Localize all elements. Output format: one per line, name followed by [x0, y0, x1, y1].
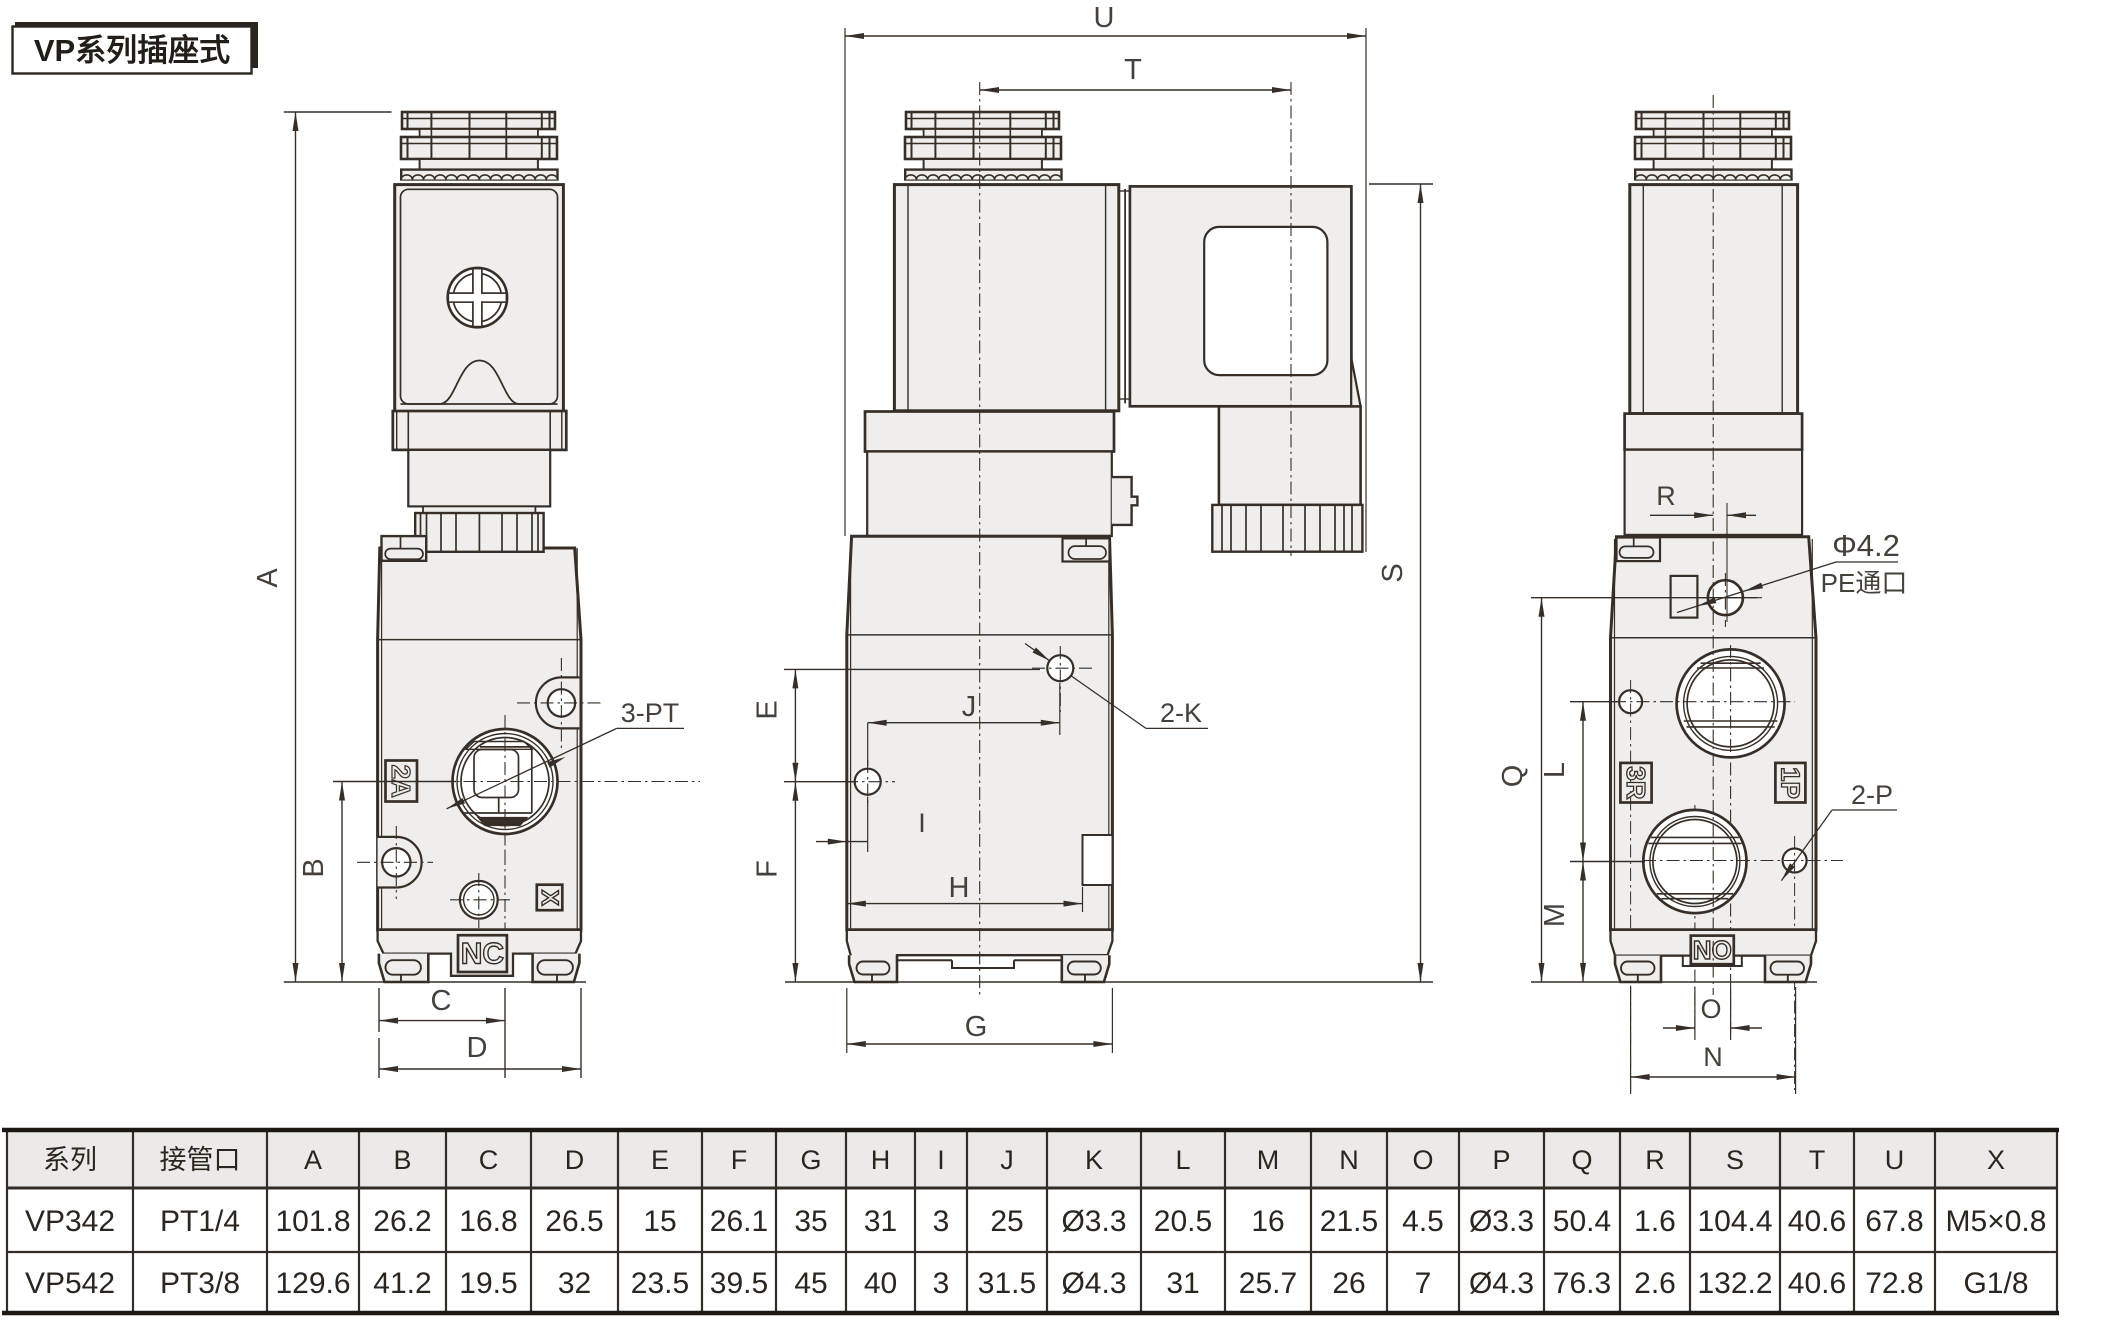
svg-text:U: U	[1885, 1145, 1905, 1175]
svg-text:R: R	[1645, 1145, 1665, 1175]
svg-text:15: 15	[643, 1205, 676, 1238]
svg-text:S: S	[1377, 563, 1409, 582]
svg-text:50.4: 50.4	[1553, 1205, 1611, 1238]
svg-text:B: B	[393, 1145, 411, 1175]
svg-text:67.8: 67.8	[1865, 1205, 1923, 1238]
svg-text:1.6: 1.6	[1634, 1205, 1676, 1238]
svg-text:J: J	[1000, 1145, 1014, 1175]
svg-text:D: D	[467, 1032, 488, 1064]
svg-text:D: D	[565, 1145, 585, 1175]
svg-text:19.5: 19.5	[459, 1267, 517, 1300]
svg-text:Ø3.3: Ø3.3	[1061, 1205, 1126, 1238]
svg-text:21.5: 21.5	[1320, 1205, 1378, 1238]
svg-text:39.5: 39.5	[710, 1267, 768, 1300]
svg-text:Q: Q	[1571, 1145, 1592, 1175]
svg-text:45: 45	[794, 1267, 827, 1300]
svg-text:U: U	[1094, 2, 1115, 34]
svg-text:40.6: 40.6	[1788, 1205, 1846, 1238]
svg-text:3: 3	[933, 1205, 950, 1238]
svg-text:PE通口: PE通口	[1821, 568, 1908, 598]
svg-text:26.5: 26.5	[545, 1205, 603, 1238]
svg-text:J: J	[962, 691, 977, 723]
svg-text:T: T	[1124, 54, 1142, 86]
svg-text:129.6: 129.6	[275, 1267, 350, 1300]
svg-text:K: K	[1085, 1145, 1103, 1175]
svg-text:3-PT: 3-PT	[621, 698, 680, 728]
svg-text:40: 40	[864, 1267, 897, 1300]
svg-text:O: O	[1412, 1145, 1433, 1175]
svg-text:VP系列插座式: VP系列插座式	[34, 33, 230, 68]
svg-text:E: E	[651, 1145, 669, 1175]
svg-text:M5×0.8: M5×0.8	[1946, 1205, 2047, 1238]
svg-text:NO: NO	[1693, 935, 1732, 965]
svg-text:B: B	[298, 858, 330, 877]
svg-text:PT1/4: PT1/4	[160, 1205, 240, 1238]
svg-text:F: F	[752, 860, 784, 878]
svg-text:PT3/8: PT3/8	[160, 1267, 240, 1300]
svg-text:N: N	[1339, 1145, 1359, 1175]
svg-text:3: 3	[933, 1267, 950, 1300]
svg-text:26.1: 26.1	[710, 1205, 768, 1238]
svg-text:E: E	[752, 700, 784, 719]
svg-text:L: L	[1175, 1145, 1190, 1175]
svg-text:Ø4.3: Ø4.3	[1061, 1267, 1126, 1300]
svg-text:H: H	[949, 872, 970, 904]
svg-text:R: R	[1656, 481, 1676, 511]
svg-text:Φ4.2: Φ4.2	[1832, 528, 1900, 563]
svg-text:20.5: 20.5	[1154, 1205, 1212, 1238]
svg-text:F: F	[731, 1145, 748, 1175]
svg-text:N: N	[1703, 1042, 1723, 1072]
svg-text:系列: 系列	[43, 1145, 97, 1175]
svg-text:G: G	[800, 1145, 821, 1175]
svg-text:M: M	[1539, 903, 1571, 927]
svg-text:VP342: VP342	[25, 1205, 115, 1238]
svg-text:26.2: 26.2	[373, 1205, 431, 1238]
svg-text:G1/8: G1/8	[1963, 1267, 2028, 1300]
svg-text:16.8: 16.8	[459, 1205, 517, 1238]
svg-text:31: 31	[1166, 1267, 1199, 1300]
svg-text:NC: NC	[461, 937, 504, 970]
svg-text:C: C	[479, 1145, 499, 1175]
svg-text:104.4: 104.4	[1697, 1205, 1772, 1238]
svg-text:O: O	[1700, 994, 1721, 1024]
svg-text:X: X	[1987, 1145, 2005, 1175]
svg-text:32: 32	[558, 1267, 591, 1300]
svg-text:23.5: 23.5	[631, 1267, 689, 1300]
svg-text:2-K: 2-K	[1160, 698, 1202, 728]
svg-text:P: P	[1492, 1145, 1510, 1175]
svg-text:31: 31	[864, 1205, 897, 1238]
svg-text:25.7: 25.7	[1239, 1267, 1297, 1300]
svg-text:L: L	[1539, 762, 1571, 778]
svg-text:2-P: 2-P	[1851, 780, 1893, 810]
svg-text:7: 7	[1415, 1267, 1432, 1300]
svg-text:Ø3.3: Ø3.3	[1469, 1205, 1534, 1238]
svg-text:4.5: 4.5	[1402, 1205, 1444, 1238]
svg-text:M: M	[1257, 1145, 1280, 1175]
svg-text:G: G	[965, 1011, 988, 1043]
svg-text:132.2: 132.2	[1697, 1267, 1772, 1300]
svg-text:25: 25	[990, 1205, 1023, 1238]
svg-text:101.8: 101.8	[275, 1205, 350, 1238]
svg-text:40.6: 40.6	[1788, 1267, 1846, 1300]
svg-text:3R: 3R	[1621, 766, 1651, 799]
svg-text:41.2: 41.2	[373, 1267, 431, 1300]
svg-text:C: C	[431, 985, 452, 1017]
svg-text:A: A	[252, 568, 284, 588]
svg-text:26: 26	[1332, 1267, 1365, 1300]
svg-text:1P: 1P	[1775, 767, 1805, 799]
svg-text:S: S	[1726, 1145, 1744, 1175]
svg-text:76.3: 76.3	[1553, 1267, 1611, 1300]
svg-text:2.6: 2.6	[1634, 1267, 1676, 1300]
svg-text:H: H	[871, 1145, 891, 1175]
svg-text:接管口: 接管口	[160, 1145, 241, 1175]
svg-text:T: T	[1809, 1145, 1826, 1175]
svg-text:X: X	[536, 890, 563, 906]
svg-text:72.8: 72.8	[1865, 1267, 1923, 1300]
svg-text:31.5: 31.5	[978, 1267, 1036, 1300]
svg-text:35: 35	[794, 1205, 827, 1238]
svg-text:A: A	[304, 1145, 322, 1175]
svg-text:Ø4.3: Ø4.3	[1469, 1267, 1534, 1300]
svg-text:16: 16	[1251, 1205, 1284, 1238]
svg-text:I: I	[937, 1145, 945, 1175]
svg-text:I: I	[918, 808, 926, 838]
svg-text:Q: Q	[1497, 765, 1529, 788]
svg-text:VP542: VP542	[25, 1267, 115, 1300]
